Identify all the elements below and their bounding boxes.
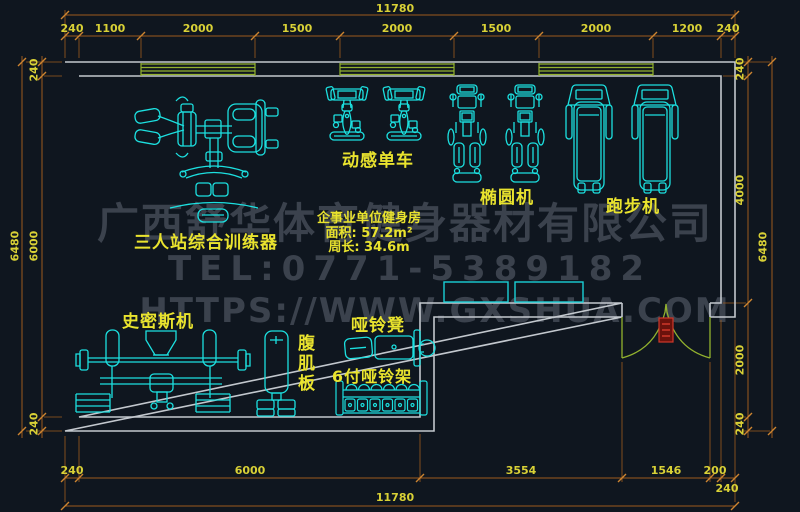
dim-bottom-seg4: 200 — [704, 464, 727, 477]
window-1 — [141, 63, 255, 76]
label-elliptical: 椭圆机 — [480, 183, 534, 208]
label-treadmill: 跑步机 — [606, 192, 660, 217]
dim-bottom-seg0: 240 — [61, 464, 84, 477]
dim-left-seg1: 6000 — [28, 231, 41, 262]
dim-right-seg3: 240 — [734, 413, 747, 436]
dim-top-seg4: 2000 — [382, 22, 413, 35]
spin-bike-drawing-1 — [326, 86, 368, 140]
label-spin-bike: 动感单车 — [342, 146, 414, 171]
dim-top-seg7: 1200 — [672, 22, 703, 35]
dim-bottom-seg3: 1546 — [651, 464, 682, 477]
mat-1 — [444, 282, 508, 302]
dim-right-seg1: 4000 — [734, 175, 747, 206]
floor-plan-canvas — [0, 0, 800, 512]
treadmill-drawing-1 — [566, 85, 612, 193]
windows — [141, 63, 653, 76]
dim-top-seg0: 240 — [61, 22, 84, 35]
dim-top-seg2: 2000 — [183, 22, 214, 35]
door-marker — [659, 318, 673, 342]
cad-floor-plan: 广西舒华体育健身器材有限公司 TEL:0771-5389182 HTTPS://… — [0, 0, 800, 512]
label-ab-board: 腹肌板 — [292, 334, 317, 394]
dim-right-seg2: 2000 — [734, 345, 747, 376]
dim-right-seg0: 240 — [734, 58, 747, 81]
dim-bottom-seg5: 240 — [716, 482, 739, 495]
mat-2 — [515, 282, 583, 302]
room-perimeter: 周长: 34.6m — [328, 236, 409, 255]
dim-bottom-seg2: 3554 — [506, 464, 537, 477]
dim-top-seg6: 2000 — [581, 22, 612, 35]
elliptical-drawing-2 — [506, 85, 544, 182]
label-dumbbell-bench: 哑铃凳 — [351, 311, 405, 336]
dim-left-total: 6480 — [9, 231, 22, 262]
label-dumbbell-rack: 6付哑铃架 — [332, 363, 412, 387]
dim-top-seg5: 1500 — [481, 22, 512, 35]
multi-station-trainer-drawing — [134, 97, 278, 222]
elliptical-drawing-1 — [448, 85, 486, 182]
dimension-ticks — [18, 11, 776, 510]
label-smith-machine: 史密斯机 — [122, 307, 194, 332]
dim-bottom-seg1: 6000 — [235, 464, 266, 477]
dim-top-total: 11780 — [376, 2, 414, 15]
window-3 — [539, 63, 653, 76]
window-2 — [340, 63, 454, 76]
dim-left-seg0: 240 — [28, 59, 41, 82]
spin-bike-drawing-2 — [383, 86, 425, 140]
dim-bottom-total: 11780 — [376, 491, 414, 504]
dim-top-seg1: 1100 — [95, 22, 126, 35]
dim-top-seg8: 240 — [717, 22, 740, 35]
dim-top-seg3: 1500 — [282, 22, 313, 35]
treadmill-drawing-2 — [632, 85, 678, 193]
dim-left-seg2: 240 — [28, 413, 41, 436]
label-multi-station: 三人站综合训练器 — [134, 228, 278, 253]
dim-right-total: 6480 — [757, 232, 770, 263]
